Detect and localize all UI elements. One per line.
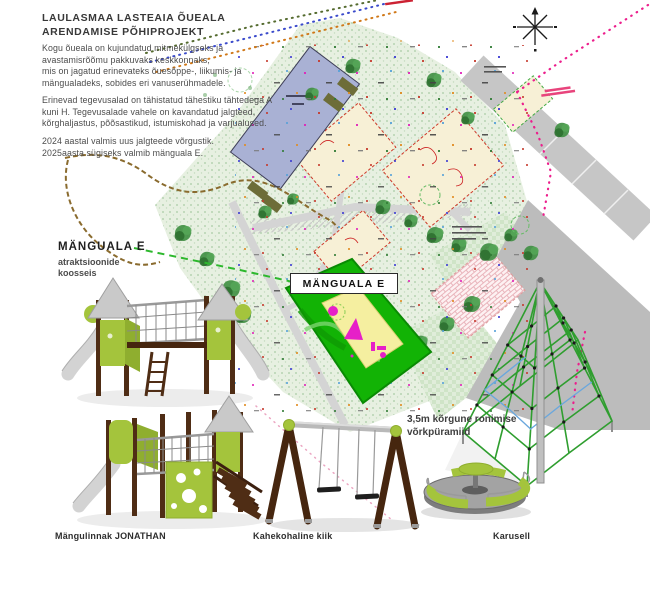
tower-illustration-view2 [73, 396, 267, 529]
swing-caption: Kahekohaline kiik [253, 531, 332, 541]
section-subheading: atraktsioonide koosseis [58, 257, 120, 279]
timeline-paragraph: 2024 aastal valmis uus jalgteede võrgust… [42, 136, 214, 159]
project-poster: LAULASMAA LASTEAIA ÕUEALA ARENDAMISE PÕH… [0, 0, 650, 596]
carousel-caption: Karusell [493, 531, 530, 541]
zone-e-map-label-text: MÄNGUALA E [303, 278, 386, 290]
pyramid-note: 3,5m kõrgune ronimise võrkpüramiid [407, 413, 516, 439]
zones-paragraph: Erinevad tegevusalad on tähistatud tähes… [42, 95, 272, 130]
tower-caption: Mängulinnak JONATHAN [55, 531, 166, 541]
zone-e-map-label: MÄNGUALA E [290, 273, 398, 294]
equipment-illustrations [0, 0, 650, 596]
section-heading-manguala-e: MÄNGUALA E [58, 241, 146, 253]
intro-paragraph: Kogu õueala on kujundatud mitmekülgseks … [42, 43, 242, 89]
page-title: LAULASMAA LASTEAIA ÕUEALA ARENDAMISE PÕH… [42, 11, 225, 39]
tower-illustration-view1 [62, 278, 269, 407]
swing-illustration [266, 420, 420, 533]
carousel-illustration [421, 463, 531, 520]
